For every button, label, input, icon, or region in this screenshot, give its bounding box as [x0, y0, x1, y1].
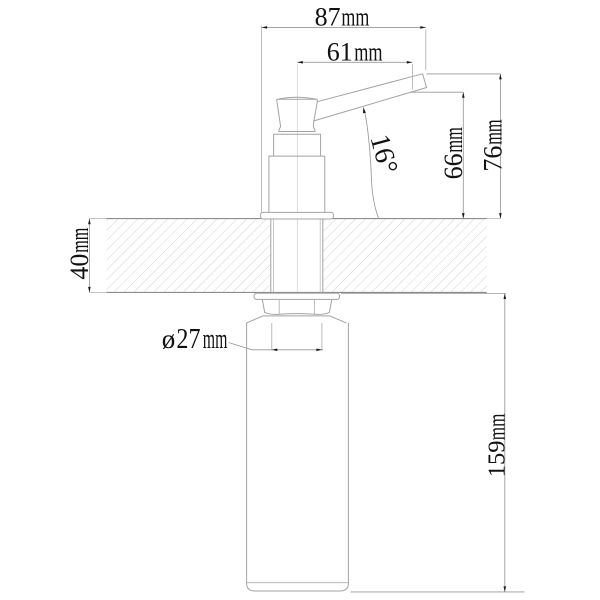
svg-text:mm: mm	[65, 228, 94, 253]
svg-text:mm: mm	[203, 323, 228, 354]
svg-text:mm: mm	[439, 127, 468, 153]
svg-text:76: 76	[478, 146, 507, 172]
svg-text:61: 61	[327, 37, 353, 66]
svg-text:87: 87	[315, 2, 341, 31]
svg-text:159: 159	[484, 441, 511, 478]
svg-text:mm: mm	[354, 37, 383, 66]
svg-text:mm: mm	[341, 2, 369, 31]
svg-text:27: 27	[176, 323, 200, 354]
svg-text:16°: 16°	[363, 131, 403, 177]
svg-text:mm: mm	[483, 413, 511, 440]
svg-text:66: 66	[439, 153, 468, 179]
svg-text:mm: mm	[479, 119, 508, 145]
svg-text:40: 40	[65, 254, 94, 280]
svg-text:ø: ø	[162, 324, 176, 354]
